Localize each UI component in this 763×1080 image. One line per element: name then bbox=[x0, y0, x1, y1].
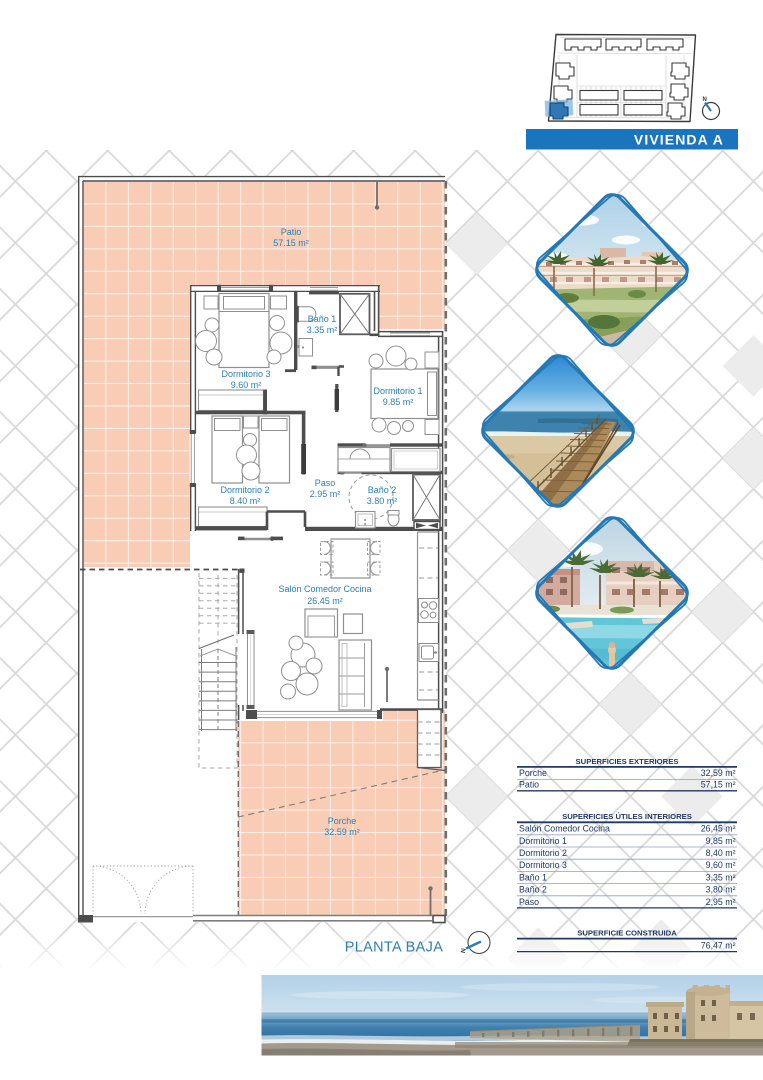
svg-text:Baño 1: Baño 1 bbox=[519, 872, 547, 882]
svg-text:8.40 m²: 8.40 m² bbox=[230, 496, 261, 506]
svg-text:9.85 m²: 9.85 m² bbox=[383, 397, 414, 407]
svg-text:Porche: Porche bbox=[328, 816, 357, 826]
svg-text:3,80 m²: 3,80 m² bbox=[706, 885, 736, 895]
svg-text:Patio: Patio bbox=[281, 227, 302, 237]
svg-text:9,60 m²: 9,60 m² bbox=[706, 860, 736, 870]
svg-text:Baño 2: Baño 2 bbox=[368, 485, 397, 495]
svg-text:SUPERFICIE CONSTRUIDA: SUPERFICIE CONSTRUIDA bbox=[577, 928, 677, 937]
svg-text:Dormitorio 2: Dormitorio 2 bbox=[519, 848, 567, 858]
svg-text:N: N bbox=[703, 97, 707, 103]
svg-text:VIVIENDA A: VIVIENDA A bbox=[634, 132, 724, 148]
svg-text:Baño 1: Baño 1 bbox=[308, 314, 337, 324]
svg-text:Dormitorio 1: Dormitorio 1 bbox=[373, 386, 422, 396]
svg-text:Dormitorio 3: Dormitorio 3 bbox=[519, 860, 567, 870]
svg-text:26.45 m²: 26.45 m² bbox=[307, 596, 343, 606]
svg-text:57,15 m²: 57,15 m² bbox=[701, 780, 736, 790]
svg-text:3.80 m²: 3.80 m² bbox=[367, 496, 398, 506]
svg-text:32.59 m²: 32.59 m² bbox=[324, 827, 360, 837]
svg-text:8,40 m²: 8,40 m² bbox=[706, 848, 736, 858]
svg-text:PLANTA BAJA: PLANTA BAJA bbox=[345, 940, 444, 956]
svg-text:Dormitorio 2: Dormitorio 2 bbox=[220, 485, 269, 495]
svg-text:Salón Comedor Cocina: Salón Comedor Cocina bbox=[519, 824, 610, 834]
svg-text:Paso: Paso bbox=[315, 478, 336, 488]
svg-text:76,47 m²: 76,47 m² bbox=[701, 940, 736, 950]
svg-text:2.95 m²: 2.95 m² bbox=[310, 489, 341, 499]
svg-text:Salón Comedor Cocina: Salón Comedor Cocina bbox=[278, 584, 371, 594]
svg-text:9,85 m²: 9,85 m² bbox=[706, 836, 736, 846]
svg-text:9.60 m²: 9.60 m² bbox=[231, 380, 262, 390]
svg-text:Paso: Paso bbox=[519, 897, 539, 907]
svg-text:32,59 m²: 32,59 m² bbox=[701, 768, 736, 778]
svg-text:Dormitorio 1: Dormitorio 1 bbox=[519, 836, 567, 846]
svg-text:SUPERFICIES EXTERIORES: SUPERFICIES EXTERIORES bbox=[576, 757, 679, 766]
svg-text:Baño 2: Baño 2 bbox=[519, 885, 547, 895]
svg-text:3.35 m²: 3.35 m² bbox=[307, 325, 338, 335]
svg-text:Dormitorio 3: Dormitorio 3 bbox=[221, 369, 270, 379]
svg-text:2,95 m²: 2,95 m² bbox=[706, 897, 736, 907]
svg-text:Porche: Porche bbox=[519, 768, 547, 778]
svg-text:SUPERFICIES ÚTILES INTERIORES: SUPERFICIES ÚTILES INTERIORES bbox=[562, 812, 692, 821]
svg-text:57.15 m²: 57.15 m² bbox=[273, 238, 309, 248]
svg-text:Patio: Patio bbox=[519, 780, 539, 790]
svg-text:3,35 m²: 3,35 m² bbox=[706, 872, 736, 882]
svg-text:26,45 m²: 26,45 m² bbox=[701, 824, 736, 834]
